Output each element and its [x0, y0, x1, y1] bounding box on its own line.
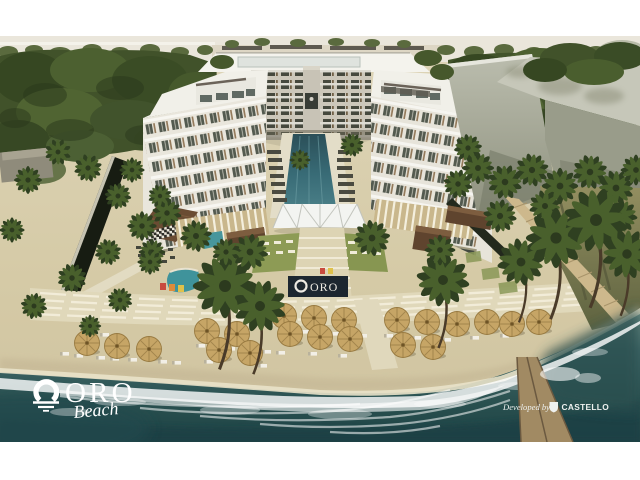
svg-text:Beach: Beach: [73, 398, 120, 422]
svg-text:Developed by: Developed by: [502, 402, 550, 412]
svg-text:CASTELLO: CASTELLO: [562, 402, 610, 412]
